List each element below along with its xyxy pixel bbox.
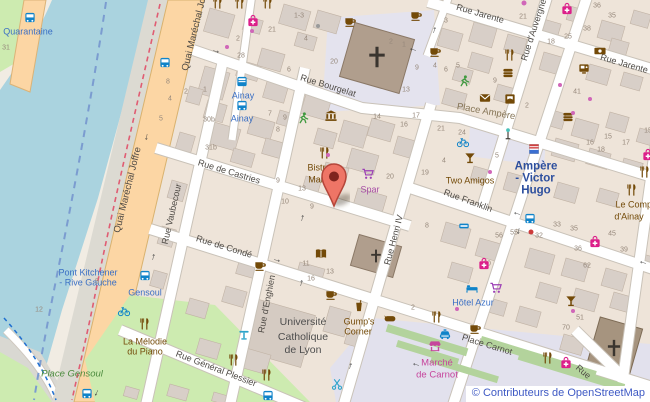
street-label-rue-partial: Rue [574,363,592,381]
house-number: 4 [304,36,308,43]
house-number: 8 [425,223,429,230]
street-label-rue-general-plessier: Rue Général Plessier [174,349,257,388]
oneway-arrow-icon: → [513,225,525,237]
house-number: 9 [276,178,280,185]
house-number: 36 [574,246,582,253]
park-label-place-gensoul: Place Gensoul [41,369,103,379]
poi-label-la-melodie-du-piano: La Mélodie [123,338,167,347]
poi-dot [455,307,459,311]
house-number: 17 [412,113,420,120]
rest-icon [139,318,152,331]
poi-dot [326,153,330,157]
house-number: 20 [386,174,394,181]
house-number: 6 [444,67,448,74]
taxi-icon [439,328,452,341]
house-number: 7 [268,111,272,118]
rest-icon [542,352,555,365]
house-number: 21 [519,14,527,21]
poi-dot [522,1,527,6]
poi-label-le-comptoir-dainay: Le Comptoir [615,201,650,210]
hotel-label-hotel-azur: Hôtel Azur [452,299,494,308]
house-number: 41 [573,89,581,96]
poi-dot [558,83,562,87]
sign-icon [459,221,470,232]
house-number: 4 [442,158,446,165]
house-number: 30b [203,117,215,124]
cafe-icon [254,260,267,273]
bus-icon [159,57,172,70]
house-number: 12 [35,307,43,314]
bike-icon [457,136,470,149]
house-number: 31 [2,45,10,52]
bed-icon [466,282,479,295]
transit-stop-ainay: Ainay [231,115,254,124]
book-icon [315,248,328,261]
poi-dot [316,24,320,28]
house-number: 16 [307,276,315,283]
house-number: 4 [433,63,437,70]
house-number: 21 [268,27,276,34]
cafe-icon [469,323,482,336]
house-number: 1 [402,42,406,49]
poi-label-le-comptoir-dainay: d'Ainay [614,213,643,222]
note-icon [594,45,607,58]
tram-icon [236,76,249,89]
house-number: 5 [159,116,163,123]
transit-stop-gensoul: Gensoul [128,289,162,298]
rest-icon [504,49,517,62]
pharm-icon [560,357,573,370]
atm-icon [578,63,591,76]
cocktail-icon [565,295,578,308]
house-number: 16 [586,140,594,147]
house-number: 2 [236,36,240,43]
oneway-arrow-icon: → [637,257,649,269]
house-number: 10 [281,199,289,206]
house-number: 9 [283,115,287,122]
lamp-icon [502,128,515,141]
street-label-rue-franklin: Rue Franklin [442,188,493,214]
oneway-arrow-icon: → [407,44,419,56]
house-number: 5 [456,63,460,70]
house-number: 28 [237,53,245,60]
house-number: 13 [326,269,334,276]
drink-icon [353,300,366,313]
rest-icon [431,311,444,324]
house-number: 2 [184,89,188,96]
house-number: 38 [583,26,591,33]
rest-icon [639,166,650,179]
rest-icon [212,0,225,10]
street-label-rue-bourgelat: Rue Bourgelat [299,73,357,98]
cross-icon [605,339,624,358]
oneway-arrow-icon: → [147,251,159,263]
bank-icon [325,110,338,123]
house-number: 33 [553,222,561,229]
house-number: 35 [570,226,578,233]
house-number: 8 [276,127,280,134]
cafe-icon [410,10,423,23]
cross-icon [369,249,384,264]
poi-dot [529,230,534,235]
teapot-icon [384,312,397,325]
house-number: 45 [608,231,616,238]
bike-icon [118,305,131,318]
cafe-icon [344,16,357,29]
poi-label-two-amigos: Two Amigos [446,177,495,186]
rest-icon [234,0,247,10]
poi-label-universite-catholique: de Lyon [285,345,322,356]
house-number: 51 [576,315,584,322]
bus-icon [524,213,537,226]
oneway-arrow-icon: → [428,24,440,36]
run-icon [458,75,471,88]
transit-stop-pont-kitchener: - Rive Gauche [59,279,117,288]
house-number: 70 [562,325,570,332]
fountain-icon [238,329,251,342]
oneway-arrow-icon: → [141,131,153,143]
cross-icon [365,45,389,69]
house-number: 35 [608,13,616,20]
house-number: 17 [622,140,630,147]
house-number: 5 [495,153,499,160]
house-number: 19 [421,170,429,177]
house-number: 9 [310,204,314,211]
house-number: 31b [205,145,217,152]
house-number: 11 [302,261,309,268]
house-number: 9 [415,65,419,72]
oneway-arrow-icon: → [210,45,222,57]
house-number: 20 [330,59,338,66]
transit-stop-quarantaine: Quarantaine [3,28,53,37]
cart-icon [490,282,503,295]
bus-icon [24,12,37,25]
house-number: 9 [493,78,497,85]
cocktail-icon [464,152,477,165]
house-number: 62 [583,263,591,270]
oneway-arrow-icon: → [271,254,283,266]
poi-dot [571,309,575,313]
map-canvas[interactable]: Quai Maréchal JoffreQuai Maréchal Joffre… [0,0,650,402]
pharm-icon [561,3,574,16]
station-label-ampere-victor-hugo: - Victor [515,173,554,185]
station-label-ampere-victor-hugo: Hugo [521,185,550,197]
poi-dot [588,97,592,101]
oneway-arrow-icon: → [344,360,356,372]
house-number: 16 [400,122,408,129]
house-number: 56 [495,233,503,240]
poi-label-gumps-corner: Corner [344,328,372,337]
street-label-rue-henri-iv: Rue Henri IV [383,214,405,266]
house-number: 15 [604,134,612,141]
poi-dot [571,111,575,115]
street-label-rue-jarente: Rue Jarente [599,53,649,75]
street-label-rue-denghien: Rue d'Enghien [257,274,277,333]
mail-icon [479,92,492,105]
poi-label-marche-de-carnot: de Carnot [416,370,458,380]
poi-dot [250,29,254,33]
house-number: 21 [437,126,445,133]
pharm-icon [589,236,602,249]
poi-label-la-melodie-du-piano: du Piano [127,348,163,357]
transit-stop-pont-kitchener: Pont Kitchener [58,269,117,278]
scissors-icon [331,378,344,391]
attribution-bar[interactable]: © Contributeurs de OpenStreetMap [466,386,650,402]
rest-icon [228,354,241,367]
attribution-text[interactable]: © Contributeurs de OpenStreetMap [472,387,645,399]
house-number: 18 [597,147,605,154]
house-number: 39 [620,247,628,254]
poi-label-gumps-corner: Gump's [344,318,375,327]
oneway-arrow-icon: → [511,208,523,220]
house-number: 2 [411,305,415,312]
house-number: 1-3 [294,13,304,20]
station-label-ampere-victor-hugo: Ampère [515,161,558,173]
oneway-arrow-icon: → [295,277,307,289]
house-number: 25 [564,34,572,41]
house-number: 32 [535,233,543,240]
house-number: 4 [168,96,172,103]
pharm-icon [642,149,650,162]
house-number: 3 [444,18,448,25]
market-icon [429,340,442,353]
street-label-rue-de-castries: Rue de Castries [197,158,261,185]
street-label-quai-marechal-joffre: Quai Maréchal Joffre [181,0,212,72]
poi-label-universite-catholique: Catholique [278,332,328,343]
street-label-place-carnot: Place Carnot [461,333,513,357]
house-number: 36 [593,3,601,10]
bus-icon [236,100,249,113]
poi-label-universite-catholique: Université [280,317,327,328]
cafe-icon [325,289,338,302]
burger-icon [502,67,515,80]
mentr-icon [528,143,541,156]
house-number: 5 [95,279,99,286]
cart-icon [362,168,375,181]
pharm-icon [478,258,491,271]
poi-label-marche-de-carnot: Marché [421,358,453,368]
street-label-rue-dauvergne: Rue d'Auvergne [520,0,548,62]
kiosk-icon [504,93,517,106]
house-number: 8 [166,79,170,86]
house-number: 1 [203,87,207,94]
house-number: 13 [298,186,306,193]
house-number: 2 [525,103,529,110]
street-label-rue-de-conde: Rue de Condé [195,234,253,260]
rest-icon [626,184,639,197]
house-number: 2 [389,39,393,46]
street-label-rue-jarente: Rue Jarente [455,3,505,25]
house-number: 14 [373,114,381,121]
poi-dot [488,170,492,174]
house-number: 6 [287,67,291,74]
street-label-quai-marechal-joffre: Quai Maréchal Joffre [113,146,144,234]
poi-dot [225,45,229,49]
house-number: 13 [402,87,410,94]
pharm-icon [247,15,260,28]
map-marker-pin[interactable] [318,162,350,210]
oneway-arrow-icon: → [296,212,308,224]
bus-icon [81,388,94,401]
house-number: 15 [644,128,650,135]
run-icon [297,112,310,125]
bus-icon [139,270,152,283]
street-label-rue-vaubecour: Rue Vaubecour [161,183,184,245]
rest-icon [262,0,275,10]
rest-icon [261,369,274,382]
house-number: 18 [547,39,555,46]
shop-label-spar: Spar [360,186,379,195]
bus-icon [262,390,275,402]
cafe-icon [429,46,442,59]
